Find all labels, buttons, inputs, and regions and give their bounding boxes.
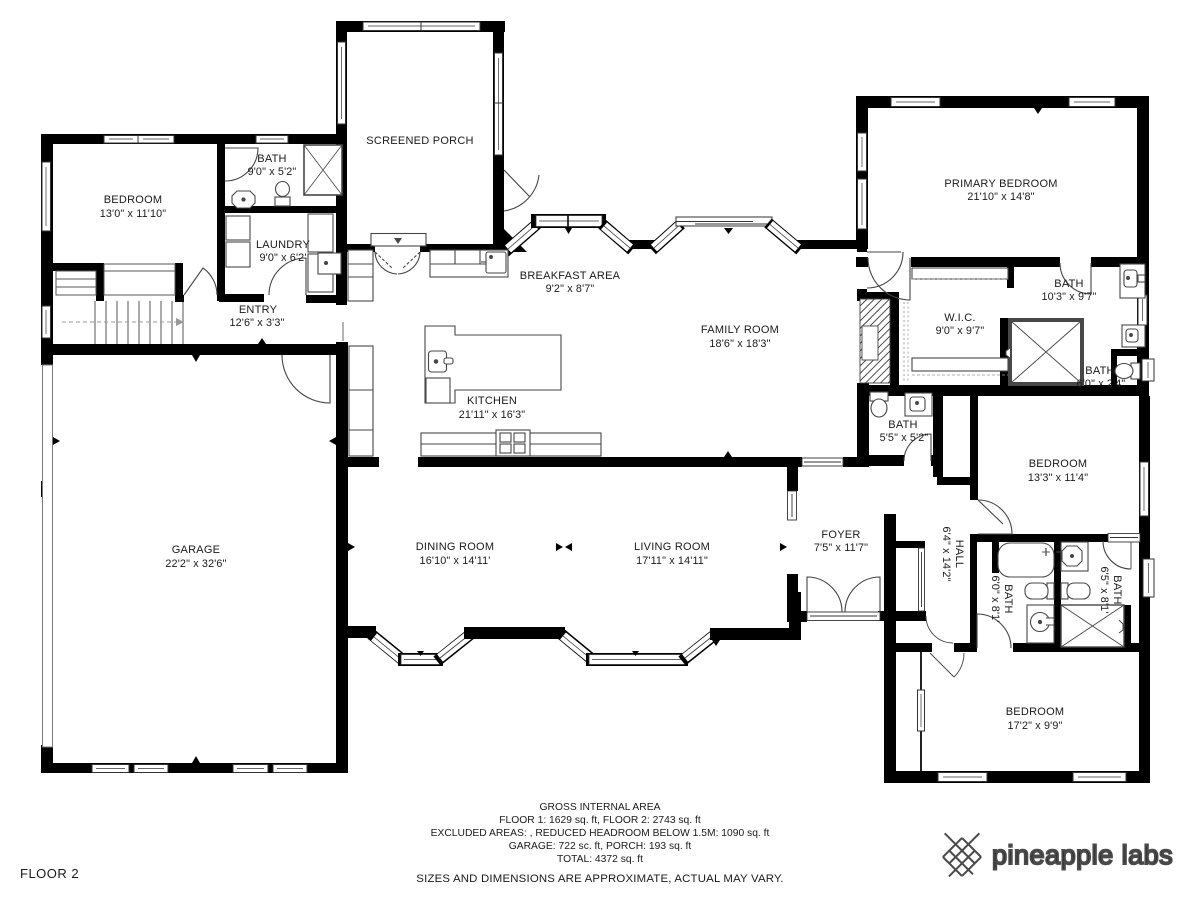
svg-text:GARAGE: 722 sc. ft, PORCH: 193: GARAGE: 722 sc. ft, PORCH: 193 sq. ft [509,841,692,852]
svg-text:7'5" x 11'7": 7'5" x 11'7" [814,542,868,554]
svg-text:17'2" x 9'9": 17'2" x 9'9" [1007,720,1062,732]
svg-text:EXCLUDED AREAS: , REDUCED HEAD: EXCLUDED AREAS: , REDUCED HEADROOM BELOW… [431,828,770,839]
svg-text:5'5" x 5'2": 5'5" x 5'2" [880,432,929,444]
svg-text:BEDROOM: BEDROOM [1006,706,1065,718]
svg-text:22'2" x 32'6": 22'2" x 32'6" [165,558,226,570]
svg-text:10'3" x 9'7": 10'3" x 9'7" [1041,291,1096,303]
svg-text:SCREENED PORCH: SCREENED PORCH [366,135,473,147]
svg-text:12'6" x 3'3": 12'6" x 3'3" [229,317,284,329]
svg-text:9'0" x 9'7": 9'0" x 9'7" [936,325,985,337]
svg-text:ENTRY: ENTRY [239,304,278,316]
svg-text:13'3" x 11'4": 13'3" x 11'4" [1028,472,1088,484]
svg-text:LIVING ROOM: LIVING ROOM [634,541,710,553]
svg-text:6'0" x 2'4": 6'0" x 2'4" [1077,378,1126,390]
svg-text:TOTAL: 4372 sq. ft: TOTAL: 4372 sq. ft [557,854,643,865]
svg-text:BREAKFAST AREA: BREAKFAST AREA [520,270,621,282]
svg-text:LAUNDRY: LAUNDRY [256,239,311,251]
svg-text:21'10" x 14'8": 21'10" x 14'8" [967,191,1034,203]
svg-text:BATH: BATH [1085,365,1115,377]
svg-text:9'2" x 8'7": 9'2" x 8'7" [546,283,595,295]
svg-text:SIZES AND DIMENSIONS ARE APPRO: SIZES AND DIMENSIONS ARE APPROXIMATE, AC… [416,873,783,885]
svg-text:9'0" x 5'2": 9'0" x 5'2" [248,166,297,178]
svg-text:HALL: HALL [953,540,965,569]
svg-text:FLOOR 1: 1629 sq. ft, FLOOR 2:: FLOOR 1: 1629 sq. ft, FLOOR 2: 2743 sq. … [499,815,701,826]
svg-text:BATH: BATH [1002,584,1014,614]
svg-text:W.I.C.: W.I.C. [944,312,975,324]
svg-text:FOYER: FOYER [821,529,860,541]
svg-text:BATH: BATH [888,419,918,431]
svg-text:BATH: BATH [257,153,287,165]
svg-text:21'11" x 16'3": 21'11" x 16'3" [459,409,526,421]
svg-text:18'6" x 18'3": 18'6" x 18'3" [709,338,770,350]
svg-text:KITCHEN: KITCHEN [467,395,517,407]
svg-text:6'5" x 8'1': 6'5" x 8'1' [1098,566,1110,613]
svg-text:FLOOR 2: FLOOR 2 [20,866,79,881]
svg-text:PRIMARY BEDROOM: PRIMARY BEDROOM [944,178,1057,190]
svg-text:16'10" x 14'11': 16'10" x 14'11' [420,555,491,567]
svg-text:17'11" x 14'11": 17'11" x 14'11" [636,555,708,567]
svg-text:GROSS INTERNAL AREA: GROSS INTERNAL AREA [540,802,661,813]
svg-text:BEDROOM: BEDROOM [1029,458,1088,470]
svg-text:BATH: BATH [1054,278,1084,290]
svg-text:DINING ROOM: DINING ROOM [416,541,495,553]
svg-text:6'4" x 14'2": 6'4" x 14'2" [940,526,952,581]
svg-text:pineapple labs: pineapple labs [992,840,1173,870]
svg-text:BATH: BATH [1111,575,1123,605]
svg-text:GARAGE: GARAGE [172,544,221,556]
svg-text:6'0" x 8'1': 6'0" x 8'1' [989,575,1001,622]
svg-text:BEDROOM: BEDROOM [104,194,163,206]
svg-text:9'0" x 6'2': 9'0" x 6'2' [259,252,306,264]
svg-text:FAMILY ROOM: FAMILY ROOM [701,324,779,336]
svg-text:13'0" x 11'10": 13'0" x 11'10" [100,208,167,220]
